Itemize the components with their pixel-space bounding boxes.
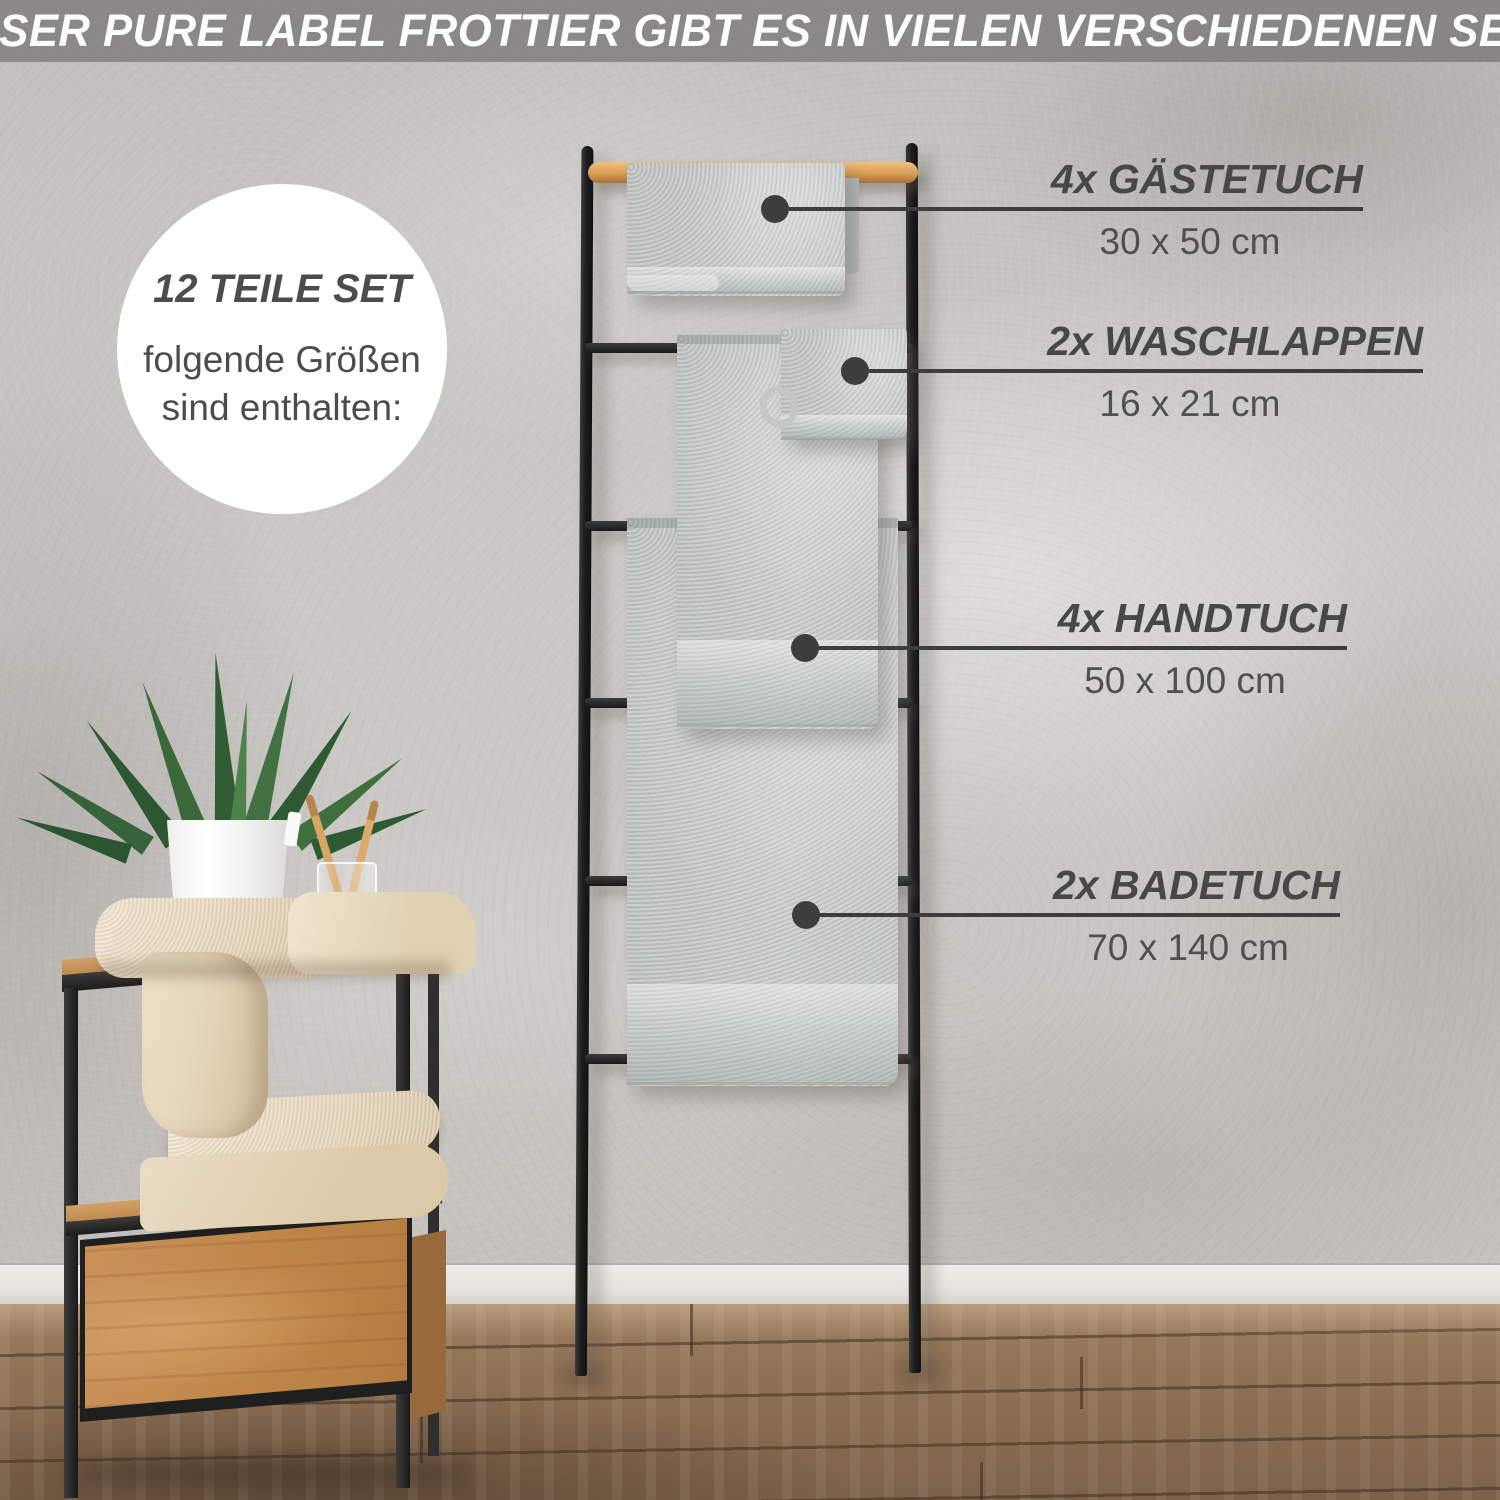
callout-size: 16 x 21 cm bbox=[1040, 383, 1340, 425]
callout-label: 2x BADETUCH bbox=[1053, 862, 1340, 909]
callout-dot bbox=[841, 357, 869, 385]
info-badge: 12 TEILE SET folgende Größen sind enthal… bbox=[117, 184, 447, 514]
callout-size: 50 x 100 cm bbox=[1035, 660, 1335, 702]
callout-line bbox=[818, 646, 1347, 650]
floor-plank-joint bbox=[1080, 1357, 1083, 1409]
callout-dot bbox=[792, 901, 820, 929]
callout-label: 4x HANDTUCH bbox=[1058, 595, 1347, 642]
drawer-front bbox=[85, 1218, 407, 1408]
drawer bbox=[80, 1211, 412, 1422]
top-banner: UNSER PURE LABEL FROTTIER GIBT ES IN VIE… bbox=[0, 0, 1500, 62]
callout-dot bbox=[791, 634, 819, 662]
product-infographic: 4x GÄSTETUCH 30 x 50 cm 2x WASCHLAPPEN 1… bbox=[0, 0, 1500, 1500]
banner-text: UNSER PURE LABEL FROTTIER GIBT ES IN VIE… bbox=[0, 5, 1500, 57]
badge-subtitle-line1: folgende Größen bbox=[143, 336, 421, 384]
guest-towel bbox=[627, 163, 845, 296]
table-floor-shadow bbox=[60, 1458, 480, 1488]
callout-label: 4x GÄSTETUCH bbox=[1051, 156, 1363, 203]
callout-size: 70 x 140 cm bbox=[1038, 927, 1338, 969]
badge-title: 12 TEILE SET bbox=[153, 267, 411, 312]
callout-line bbox=[869, 369, 1423, 373]
table-front-left-leg bbox=[64, 988, 78, 1498]
callout-label: 2x WASCHLAPPEN bbox=[1047, 318, 1423, 365]
badge-subtitle-line2: sind enthalten: bbox=[162, 384, 403, 432]
drawer-side-panel bbox=[410, 1230, 446, 1420]
callout-size: 30 x 50 cm bbox=[1040, 221, 1340, 263]
callout-line bbox=[819, 913, 1340, 917]
guest-towel-back-layer bbox=[845, 178, 859, 274]
wash-mitt bbox=[781, 329, 907, 439]
floor-plank-joint bbox=[980, 1462, 983, 1500]
floor-plank-joint bbox=[690, 1304, 693, 1356]
callout-dot bbox=[761, 195, 789, 223]
callout-line bbox=[789, 207, 1363, 211]
